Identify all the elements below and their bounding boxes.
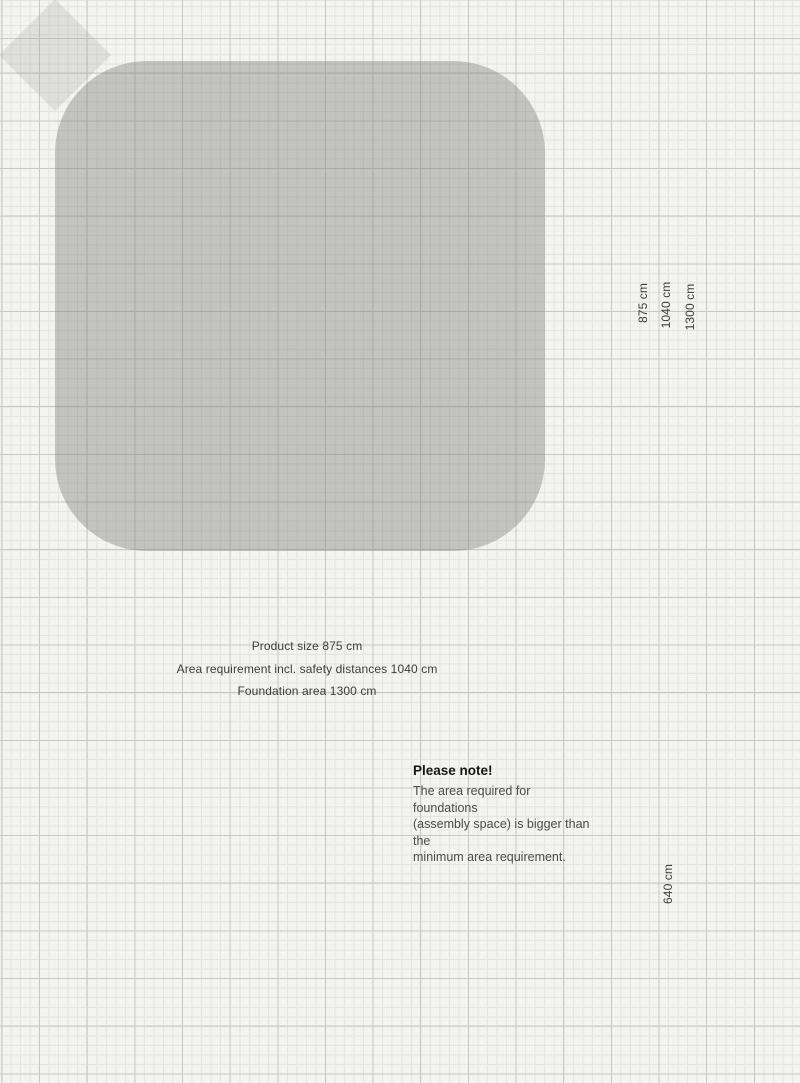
plan-areas (0, 0, 545, 551)
note-block: Please note! The area required for found… (413, 763, 598, 866)
page: 875 cm 1040 cm 1300 cm Product size 875 … (0, 0, 800, 1083)
dim-label-1040-vertical: 1040 cm (659, 282, 673, 329)
dim-label-875-vertical: 875 cm (636, 283, 650, 323)
note-line: minimum area requirement. (413, 849, 598, 866)
note-line: The area required for foundations (413, 783, 598, 816)
dim-label-1300-vertical: 1300 cm (683, 284, 697, 331)
dim-label-foundation-area: Foundation area 1300 cm (237, 684, 376, 698)
dim-label-product-size: Product size 875 cm (252, 639, 363, 653)
dim-label-area-requirement: Area requirement incl. safety distances … (177, 662, 438, 676)
safety-area (55, 61, 545, 551)
dim-label-640-height: 640 cm (661, 864, 675, 904)
note-title: Please note! (413, 763, 598, 778)
note-line: (assembly space) is bigger than the (413, 816, 598, 849)
technical-drawing (0, 0, 800, 1083)
